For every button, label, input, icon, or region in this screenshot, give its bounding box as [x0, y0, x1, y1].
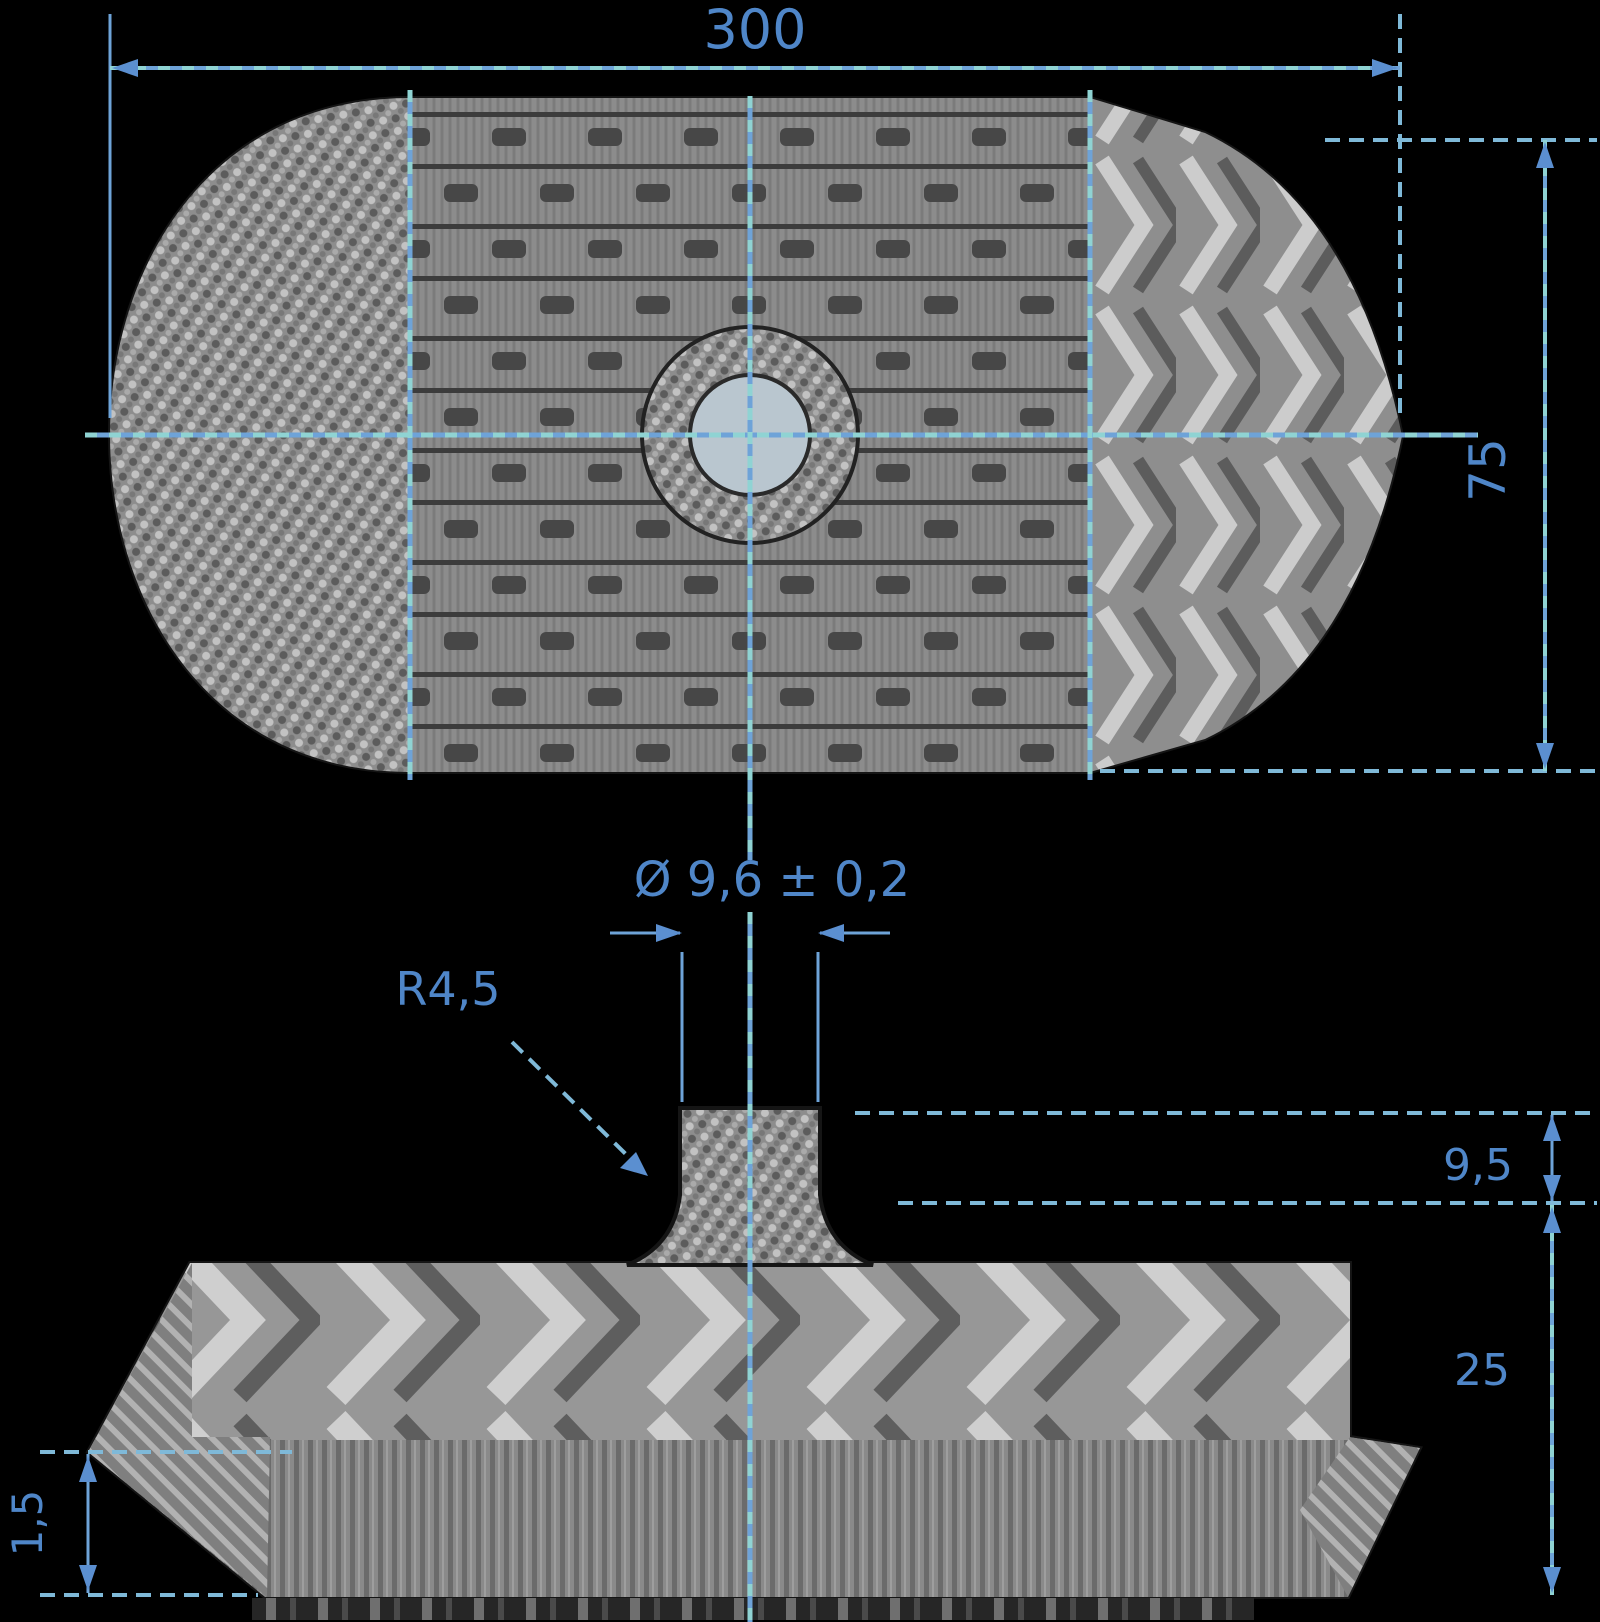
arrowhead-down4-icon	[79, 1565, 97, 1591]
strap-lower-texture	[88, 1440, 1423, 1600]
arrowhead-down2-icon	[1543, 1175, 1561, 1201]
arrowhead-left-icon	[112, 59, 138, 77]
fillet-radius-label: R4,5	[395, 962, 500, 1016]
fillet-radius-callout: R4,5	[395, 962, 648, 1176]
technical-drawing-canvas: 300 75 Ø 9,6 ± 0,2 R4,5 9,5	[0, 0, 1600, 1622]
arrowhead-left-in-icon	[818, 924, 844, 942]
arrowhead-leader-icon	[620, 1152, 648, 1176]
stud-diameter-label: Ø 9,6 ± 0,2	[634, 852, 910, 908]
arrowhead-right-in-icon	[656, 924, 682, 942]
fillet-leader-line	[512, 1042, 645, 1173]
base-height-dimension: 25	[1454, 1205, 1561, 1595]
base-height-label: 25	[1454, 1345, 1510, 1396]
stud-diameter-dimension: Ø 9,6 ± 0,2	[610, 852, 910, 1102]
arrowhead-down3-icon	[1543, 1567, 1561, 1593]
arrowhead-up3-icon	[1543, 1207, 1561, 1233]
strap-tread-texture	[88, 1258, 1350, 1440]
side-view	[88, 1108, 1423, 1620]
strap-left-chamfer-hatch	[88, 1437, 270, 1597]
drawing-svg: 300 75 Ø 9,6 ± 0,2 R4,5 9,5	[0, 0, 1600, 1622]
overall-length-label: 300	[703, 0, 806, 61]
arrowhead-up4-icon	[79, 1456, 97, 1482]
arrowhead-up2-icon	[1543, 1115, 1561, 1141]
overall-width-label: 75	[1459, 438, 1517, 502]
arrowhead-down-icon	[1536, 743, 1554, 769]
strap-teeth-band	[252, 1598, 1254, 1620]
stud-height-dimension: 9,5	[855, 1113, 1597, 1203]
stud-height-label: 9,5	[1443, 1140, 1513, 1191]
arrowhead-up-icon	[1536, 142, 1554, 168]
arrowhead-right-icon	[1372, 59, 1398, 77]
tip-thickness-label: 1,5	[3, 1490, 52, 1557]
